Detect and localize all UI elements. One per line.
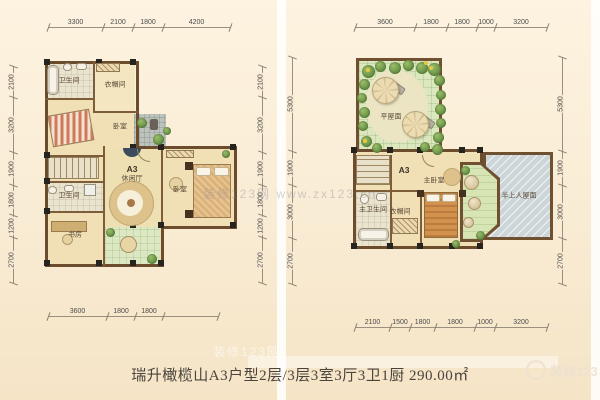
corner-column [230, 144, 236, 150]
pillow [214, 167, 229, 176]
room-label-semi-accessible-roof: 半上人屋面 [502, 193, 537, 200]
tree-plant [375, 61, 386, 72]
flower [366, 68, 370, 72]
wall [45, 98, 95, 100]
dim-label: 1900 [258, 160, 265, 178]
dim-label: 2700 [288, 252, 295, 270]
round-table [120, 236, 137, 253]
nightstand [417, 190, 424, 197]
wardrobe [166, 150, 194, 158]
round-rug [443, 168, 461, 186]
dim-label: 3200 [258, 116, 265, 134]
tree-plant [432, 144, 443, 155]
room-label-bathroom: 卫生间 [59, 78, 80, 85]
corner-column [387, 147, 393, 153]
corner-column [477, 147, 483, 153]
toilet [63, 63, 72, 71]
dim-label: 2100 [110, 19, 126, 26]
corner-column [44, 59, 50, 65]
dim-label: 3200 [513, 319, 529, 326]
dim-label: 1800 [113, 308, 129, 315]
tree-plant [461, 166, 470, 175]
room-label-master-bedroom: 主卧室 [424, 178, 445, 185]
wall [161, 146, 163, 228]
room-label-bedroom-2: 卧室 [173, 187, 187, 194]
tree-plant [476, 231, 485, 240]
dimension-right_plan-left: 5300190030002700 [288, 57, 298, 284]
garden-stone [464, 175, 479, 190]
corner-column [387, 243, 393, 249]
corner-column [44, 178, 50, 184]
corner-column [459, 147, 465, 153]
room-label-unit-a3: A3 [127, 165, 138, 174]
stairs [356, 155, 390, 185]
watermark-lower: 装修123网 [213, 343, 281, 360]
dimension-right_plan-top: 36001800180010003200 [355, 23, 547, 33]
watermark-center: 装修123网 www.zx123.cn [203, 185, 377, 202]
pillow [426, 194, 440, 202]
corner-column [96, 260, 102, 266]
dim-label: 2100 [9, 73, 16, 91]
dim-label: 1900 [558, 159, 565, 177]
tree-plant [147, 254, 157, 264]
tree-plant [358, 121, 368, 131]
nightstand [185, 162, 193, 170]
flower [424, 61, 428, 65]
tree-plant [106, 228, 115, 237]
room-label-bathroom-2: 卫生间 [59, 193, 80, 200]
right-edge-strip [591, 0, 600, 400]
flower [429, 66, 433, 70]
dim-label: 1200 [9, 217, 16, 235]
dim-label: 4200 [189, 19, 205, 26]
dimension-left_plan-right: 210032001900180012002700 [258, 66, 268, 283]
tree-plant [389, 62, 401, 74]
room-label-unit-a3: A3 [399, 166, 410, 175]
dim-label: 3600 [70, 308, 86, 315]
corner-column [158, 222, 164, 228]
dim-label: 2700 [258, 251, 265, 269]
room-label-study: 书房 [68, 232, 82, 239]
tree-plant [359, 107, 370, 118]
wall [136, 61, 139, 149]
dim-label: 3200 [513, 19, 529, 26]
tree-plant [357, 93, 367, 103]
dim-label: 1800 [423, 19, 439, 26]
dim-label: 1500 [392, 319, 408, 326]
wall [136, 146, 237, 149]
room-label-leisure-hall: 休闲厅 [122, 176, 143, 183]
nightstand [185, 210, 193, 218]
dim-label: 1000 [478, 19, 494, 26]
wall [103, 146, 105, 266]
dim-label: 3000 [558, 203, 565, 221]
tree-plant [436, 90, 446, 100]
dim-label: 1200 [258, 217, 265, 235]
corner-column [351, 243, 357, 249]
dim-label: 1000 [477, 319, 493, 326]
dim-label: 3300 [68, 19, 84, 26]
dim-label: 1800 [447, 319, 463, 326]
tree-plant [433, 132, 444, 143]
dimension-right_plan-bottom: 210015001800180010003200 [355, 323, 547, 333]
wall [390, 155, 392, 192]
dim-label: 3000 [288, 203, 295, 221]
dim-label: 1900 [288, 159, 295, 177]
dim-label: 2100 [258, 73, 265, 91]
tree-plant [137, 118, 147, 128]
dim-label: 1800 [9, 191, 16, 209]
tree-plant [435, 104, 446, 115]
wall [93, 111, 138, 113]
tree-plant [372, 143, 382, 153]
wardrobe [96, 63, 120, 72]
porch-statue [150, 119, 158, 130]
dimension-right_plan-right: 5300190030002700 [558, 57, 568, 284]
tree-plant [434, 75, 445, 86]
tree-plant [452, 240, 460, 248]
tree-plant [436, 118, 446, 128]
garden-stone [463, 217, 474, 228]
dim-label: 2700 [9, 251, 16, 269]
dim-label: 5300 [558, 95, 565, 113]
tree-plant [359, 79, 370, 90]
caption: 瑞升橄榄山A3户型2层/3层3室3厅3卫1厨 290.00㎡ [0, 364, 600, 385]
dim-label: 1800 [141, 308, 157, 315]
corner-column [477, 243, 483, 249]
wall [45, 61, 139, 64]
dim-label: 3600 [377, 19, 393, 26]
stairs [47, 157, 99, 179]
sink [376, 193, 387, 201]
wall [45, 181, 103, 183]
sink [76, 63, 87, 70]
corner-column [230, 222, 236, 228]
room-label-master-bathroom: 主卫生间 [359, 207, 387, 214]
room-label-flat-roof: 平屋面 [381, 114, 402, 121]
dim-label: 1900 [9, 160, 16, 178]
shower [84, 184, 96, 196]
dimension-left_plan-left: 210032001900180012002700 [9, 66, 19, 283]
dim-label: 1800 [415, 319, 431, 326]
room-label-cloakroom: 衣帽间 [105, 82, 126, 89]
corner-column [44, 260, 50, 266]
tree-plant [420, 142, 430, 152]
dim-label: 1800 [454, 19, 470, 26]
dim-label: 2700 [558, 252, 565, 270]
dim-label: 2100 [365, 319, 381, 326]
room-label-cloakroom: 衣帽间 [390, 209, 411, 216]
corner-column [130, 59, 136, 65]
corner-column [158, 260, 164, 266]
dim-label: 3200 [9, 116, 16, 134]
tree-plant [222, 150, 230, 158]
parasol-umbrella [372, 77, 399, 104]
dimension-left_plan-bottom: 360018001800 [48, 312, 218, 322]
dim-label: 1800 [140, 19, 156, 26]
room-label-bedroom: 卧室 [113, 124, 127, 131]
tree-plant [403, 60, 414, 71]
garden-stone [468, 197, 481, 210]
side-table [127, 199, 135, 207]
flower [363, 139, 367, 143]
wall [93, 61, 95, 113]
bathtub [358, 228, 389, 241]
corner-column [417, 243, 423, 249]
desk [51, 221, 87, 232]
pillow [442, 194, 456, 202]
floorplan-image: 3300210018004200360018001800210032001900… [0, 0, 600, 400]
wardrobe [392, 218, 418, 234]
tree-plant [153, 134, 164, 145]
wall [161, 226, 237, 229]
corner-column [130, 260, 136, 266]
toilet [48, 186, 57, 194]
bathtub [47, 65, 59, 95]
pillow [196, 167, 211, 176]
parasol-umbrella [402, 111, 429, 138]
corner-column [44, 152, 50, 158]
wall [45, 211, 103, 213]
nightstand [459, 190, 466, 197]
wall [45, 155, 103, 157]
corner-column [44, 208, 50, 214]
tree-plant [163, 127, 171, 135]
sink [64, 185, 74, 192]
dim-label: 5300 [288, 95, 295, 113]
corner-column [351, 147, 357, 153]
wall [420, 190, 422, 248]
dimension-left_plan-top: 3300210018004200 [48, 23, 230, 33]
